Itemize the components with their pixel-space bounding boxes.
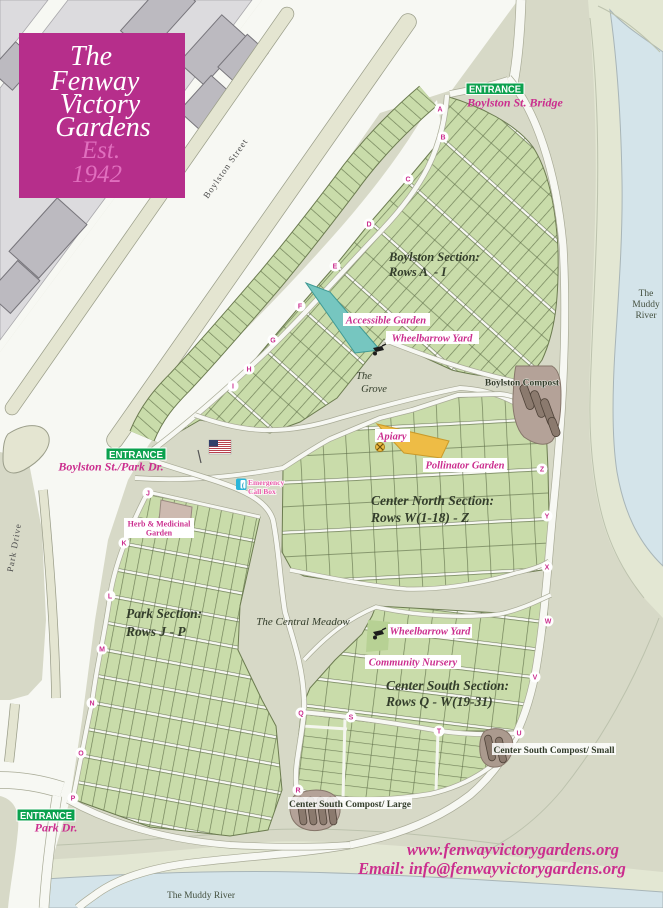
svg-text:M: M	[99, 646, 105, 653]
svg-text:River: River	[635, 311, 657, 321]
svg-text:Herb & Medicinal: Herb & Medicinal	[128, 520, 191, 529]
svg-text:A: A	[437, 106, 442, 113]
svg-text:Boylston St./Park Dr.: Boylston St./Park Dr.	[57, 460, 163, 474]
svg-text:Call Box: Call Box	[248, 487, 276, 496]
svg-text:S: S	[349, 714, 354, 721]
svg-text:Emergency: Emergency	[248, 478, 284, 487]
svg-text:K: K	[121, 540, 126, 547]
svg-text:N: N	[89, 700, 94, 707]
svg-text:Boylston St. Bridge: Boylston St. Bridge	[466, 96, 563, 110]
svg-text:Boylston Section:: Boylston Section:	[388, 250, 480, 264]
svg-text:B: B	[440, 134, 445, 141]
svg-text:D: D	[366, 221, 371, 228]
svg-text:R: R	[295, 787, 300, 794]
svg-text:J: J	[146, 490, 150, 497]
svg-text:P: P	[71, 795, 76, 802]
svg-text:U: U	[516, 730, 521, 737]
svg-text:Community Nursery: Community Nursery	[369, 658, 458, 669]
svg-text:Park Section:: Park Section:	[126, 606, 202, 621]
svg-text:O: O	[78, 750, 84, 757]
svg-text:Garden: Garden	[146, 529, 173, 538]
svg-text:1942: 1942	[72, 161, 122, 188]
svg-text:I: I	[232, 383, 234, 390]
svg-text:Accessible Garden: Accessible Garden	[345, 316, 426, 327]
svg-text:Wheelbarrow Yard: Wheelbarrow Yard	[390, 627, 472, 638]
svg-text:Rows J - P: Rows J - P	[125, 624, 186, 639]
svg-text:Z: Z	[540, 466, 545, 473]
svg-text:Rows Q - W(19-31): Rows Q - W(19-31)	[385, 694, 493, 709]
svg-text:E: E	[333, 263, 338, 270]
svg-text:Muddy: Muddy	[632, 300, 660, 310]
svg-text:C: C	[405, 176, 410, 183]
svg-text:The Muddy River: The Muddy River	[167, 891, 236, 901]
svg-text:T: T	[437, 728, 442, 735]
svg-text:Rows A - I: Rows A - I	[388, 265, 447, 279]
svg-text:W: W	[545, 618, 552, 625]
svg-text:X: X	[545, 564, 550, 571]
svg-text:www.fenwayvictorygardens.org: www.fenwayvictorygardens.org	[407, 840, 619, 859]
svg-text:Q: Q	[298, 710, 304, 717]
svg-text:The Central Meadow: The Central Meadow	[256, 616, 350, 628]
svg-text:ENTRANCE: ENTRANCE	[469, 84, 521, 95]
svg-text:Center North Section:: Center North Section:	[371, 493, 494, 508]
svg-text:Center South Compost/ Large: Center South Compost/ Large	[289, 800, 411, 810]
svg-text:Est.: Est.	[81, 137, 120, 164]
svg-text:F: F	[298, 303, 303, 310]
svg-text:Y: Y	[545, 513, 550, 520]
svg-text:The: The	[356, 371, 372, 382]
svg-text:Email: info@fenwayvictorygarde: Email: info@fenwayvictorygardens.org	[357, 859, 626, 878]
svg-text:Park Dr.: Park Dr.	[35, 821, 78, 835]
svg-text:Pollinator Garden: Pollinator Garden	[425, 461, 504, 472]
svg-text:H: H	[246, 366, 251, 373]
svg-text:Center South Section:: Center South Section:	[386, 678, 509, 693]
svg-text:The: The	[639, 289, 654, 299]
svg-text:Rows W(1-18) - Z: Rows W(1-18) - Z	[370, 510, 469, 525]
svg-text:Boylston Compost: Boylston Compost	[485, 379, 560, 389]
svg-text:L: L	[108, 593, 113, 600]
svg-text:Grove: Grove	[361, 384, 387, 395]
svg-text:Wheelbarrow Yard: Wheelbarrow Yard	[392, 334, 474, 345]
svg-text:G: G	[270, 337, 276, 344]
svg-text:V: V	[533, 674, 538, 681]
svg-text:Center South Compost/ Small: Center South Compost/ Small	[494, 746, 615, 756]
svg-text:Apiary: Apiary	[376, 432, 407, 443]
